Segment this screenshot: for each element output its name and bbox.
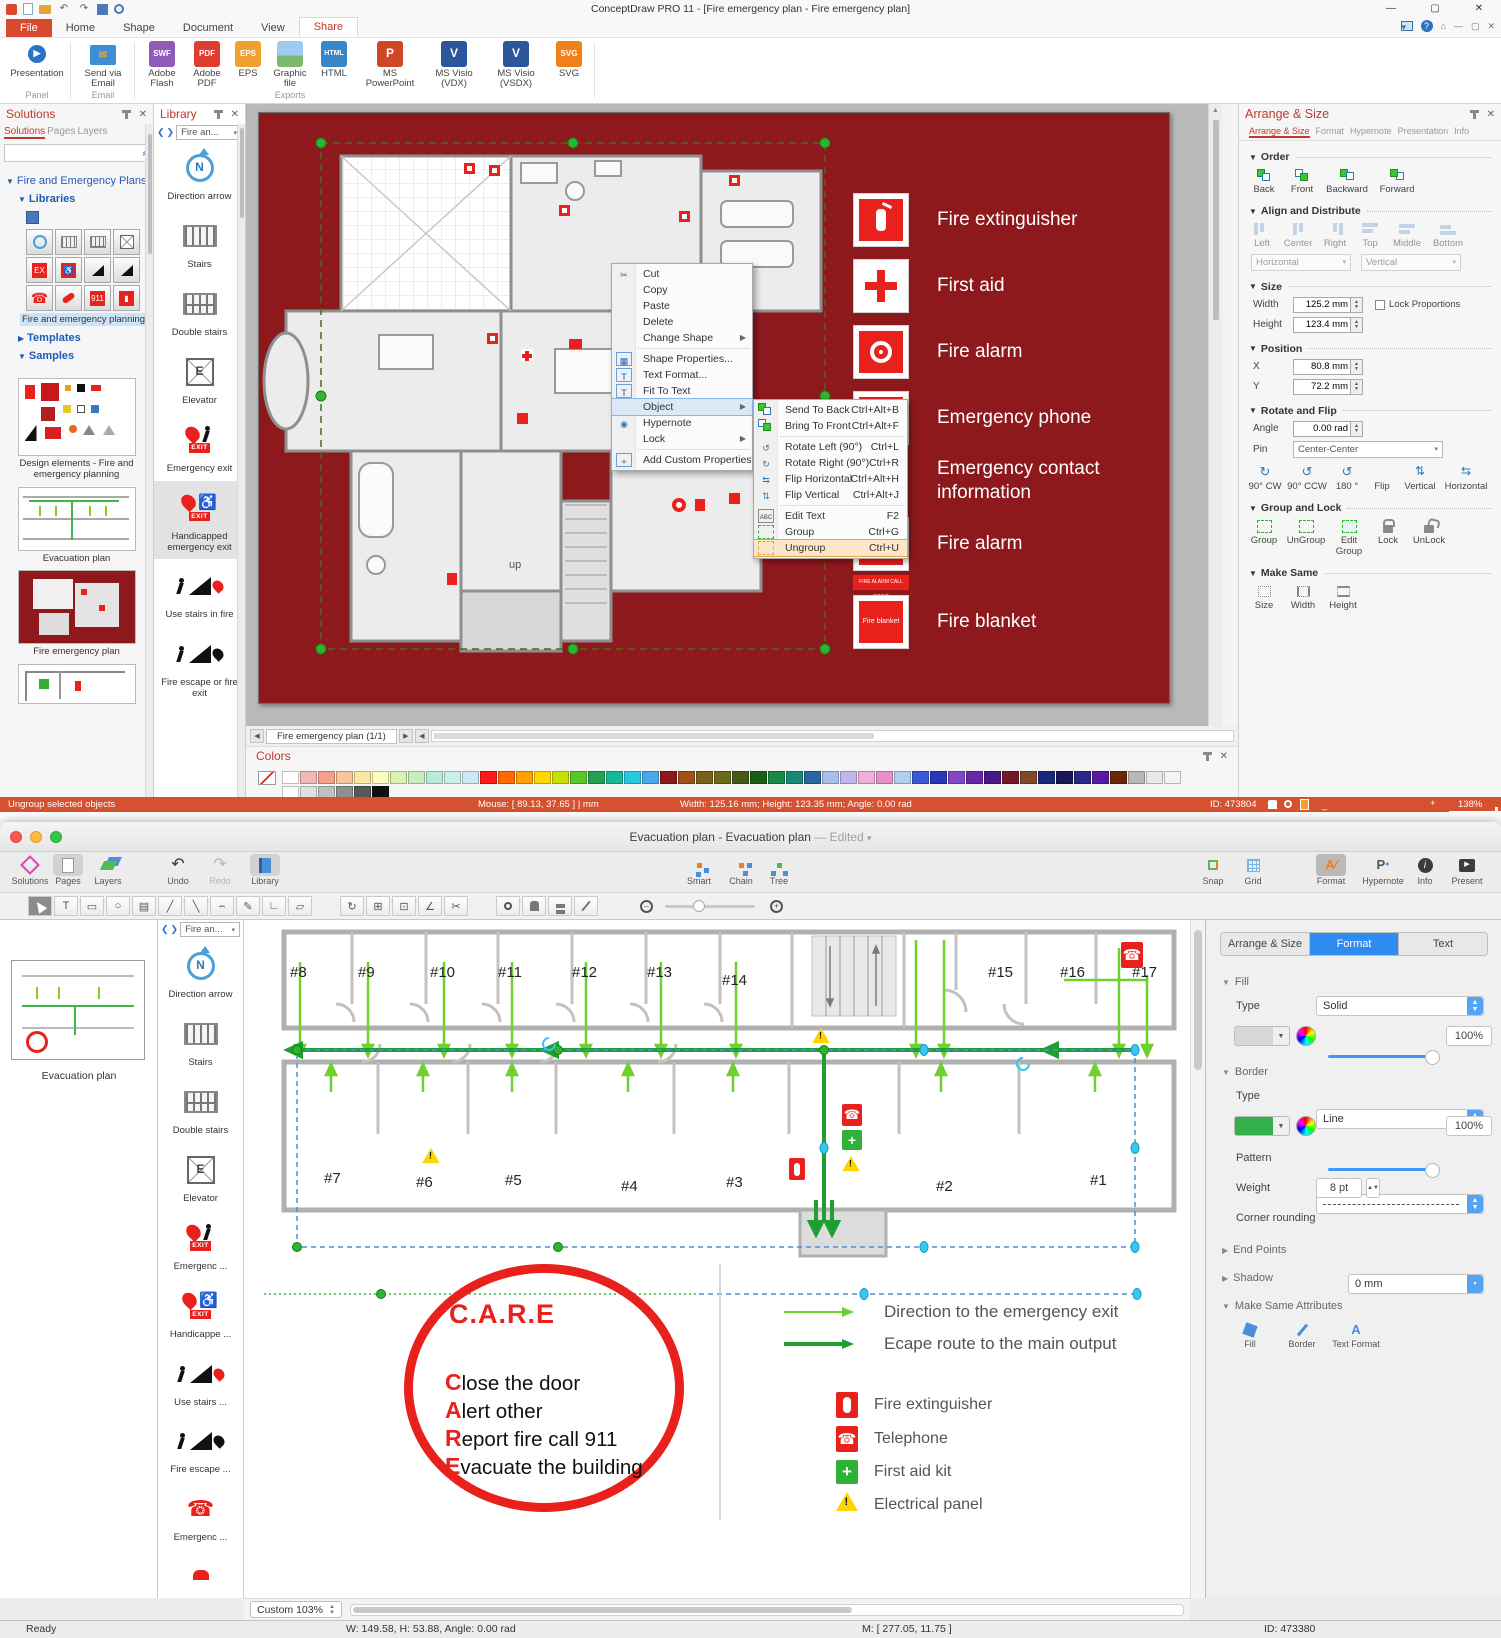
transform-tool[interactable]: ⊞ [366, 896, 390, 916]
library-forward-icon[interactable]: ❯ [167, 127, 175, 138]
library-item-stairs[interactable]: Stairs [154, 209, 245, 277]
menu-item-add-custom-properties[interactable]: +Add Custom Properties [612, 452, 752, 468]
library-item-elevator[interactable]: EElevator [158, 1143, 243, 1211]
close-button[interactable]: ✕ [1457, 0, 1501, 18]
tab-text[interactable]: Text [1399, 933, 1487, 955]
menu-item-text-format[interactable]: TText Format... [612, 367, 752, 383]
menu-item-paste[interactable]: Paste [612, 298, 752, 314]
color-swatch[interactable] [1056, 771, 1073, 784]
legend-fire-alarm-icon[interactable] [853, 325, 909, 379]
color-swatch[interactable] [300, 771, 317, 784]
unlock-button[interactable]: UnLock [1407, 518, 1451, 557]
pin-icon[interactable] [1203, 752, 1212, 761]
fill-color-swatch[interactable]: ▼ [1234, 1026, 1290, 1046]
angle-tool[interactable]: ∟ [262, 896, 286, 916]
color-swatch[interactable] [606, 771, 623, 784]
send-via-email-button[interactable]: ✉ Send via Email [76, 41, 130, 90]
ribbon-group-panel: Panel [10, 90, 64, 100]
rotate-tool[interactable]: ↻ [340, 896, 364, 916]
fill-type-select[interactable]: Solid▲▼ [1316, 996, 1484, 1016]
rotate-90ccw-button[interactable]: ↺90° CCW [1285, 464, 1329, 492]
toolbar-solutions-button[interactable]: Solutions [8, 854, 52, 887]
shape-tool[interactable]: ▱ [288, 896, 312, 916]
border-section[interactable]: ▼Border [1222, 1066, 1268, 1078]
panel-layout-icon[interactable]: ▾ [1401, 21, 1413, 31]
format-tab[interactable]: Format [1316, 126, 1345, 138]
grid-emergency-exit-icon[interactable]: EX [26, 257, 53, 283]
maximize-button[interactable]: ▢ [1413, 0, 1457, 18]
text-tool[interactable]: T [54, 896, 78, 916]
polyline-tool[interactable]: ╲ [184, 896, 208, 916]
legend-fire-extinguisher-icon[interactable] [853, 193, 909, 247]
color-swatch[interactable] [822, 771, 839, 784]
scroll-left-icon[interactable]: ◀ [415, 729, 429, 743]
color-swatch[interactable] [876, 771, 893, 784]
color-wheel-icon[interactable] [1296, 1116, 1316, 1136]
toolbar-library-button[interactable]: Library [244, 854, 286, 887]
sample-design-elements-thumbnail[interactable] [18, 378, 136, 456]
toolbar-undo-button[interactable]: ↶Undo [160, 854, 196, 887]
color-swatch[interactable] [732, 771, 749, 784]
color-swatch[interactable] [714, 771, 731, 784]
submenu-rotate-left[interactable]: ↺Rotate Left (90°)Ctrl+L [754, 439, 907, 455]
color-swatch[interactable] [642, 771, 659, 784]
close-icon[interactable]: ✕ [1487, 109, 1495, 120]
color-swatch[interactable] [750, 771, 767, 784]
next-page-icon[interactable]: ▶ [399, 729, 413, 743]
color-swatch[interactable] [390, 771, 407, 784]
align-middle-button[interactable]: Middle [1387, 221, 1427, 249]
help-icon[interactable]: ? [1421, 20, 1433, 32]
custom-properties-icon: + [616, 453, 632, 467]
toolbar-layers-button[interactable]: Layers [88, 854, 128, 887]
export-svg-button[interactable]: SVG SVG [550, 41, 588, 79]
care-instructions-circle[interactable]: C.A.R.E Close the door Alert other Repor… [404, 1264, 684, 1512]
page-thumbnail[interactable] [11, 960, 145, 1060]
align-bottom-button[interactable]: Bottom [1427, 221, 1469, 249]
color-swatch[interactable] [678, 771, 695, 784]
library-item-handicapped-exit[interactable]: ♿EXITHandicappe ... [158, 1279, 243, 1347]
solutions-search-input[interactable]: » [4, 144, 149, 162]
make-same-height-button[interactable]: Height [1323, 583, 1363, 611]
flip-horizontal-button[interactable]: ⇆Horizontal [1441, 464, 1491, 492]
color-swatch[interactable] [426, 771, 443, 784]
zoom-level-control[interactable]: Custom 103%▲▼ [250, 1601, 342, 1618]
color-swatch[interactable] [534, 771, 551, 784]
info-tab[interactable]: Info [1454, 126, 1469, 138]
border-opacity-slider[interactable] [1328, 1168, 1438, 1171]
menu-item-shape-properties[interactable]: ▦Shape Properties... [612, 351, 752, 367]
angle-input[interactable] [1293, 421, 1351, 437]
color-swatch[interactable] [552, 771, 569, 784]
color-swatch[interactable] [858, 771, 875, 784]
zoom-in-icon[interactable]: + [1430, 798, 1436, 809]
library-caption[interactable]: Fire and emergency planning [20, 313, 152, 326]
solutions-tab-pages[interactable]: Pages [47, 126, 75, 139]
grid-handicapped-exit-icon[interactable]: ♿ [55, 257, 82, 283]
color-swatch[interactable] [624, 771, 641, 784]
order-back-button[interactable]: Back [1245, 167, 1283, 195]
distribute-horizontal-dropdown[interactable]: Horizontal▾ [1251, 254, 1351, 271]
zoom-tool-icon[interactable] [1284, 800, 1292, 808]
height-stepper[interactable]: ▲▼ [1351, 317, 1363, 333]
color-swatch[interactable] [1128, 771, 1145, 784]
color-swatch[interactable] [516, 771, 533, 784]
color-swatch[interactable] [282, 771, 299, 784]
corner-rounding-select[interactable]: 0 mm▾ [1348, 1274, 1484, 1294]
collapse-ribbon-icon[interactable]: ⌂ [1441, 21, 1446, 31]
toolbar-present-button[interactable]: ▶Present [1444, 854, 1490, 887]
mac-vertical-scrollbar[interactable] [1190, 920, 1205, 1598]
presentation-button[interactable]: ▶ Presentation [8, 41, 66, 79]
end-points-section[interactable]: ▶End Points [1222, 1244, 1286, 1256]
menu-item-change-shape[interactable]: Change Shape▶ [612, 330, 752, 346]
color-swatch[interactable] [786, 771, 803, 784]
close-icon[interactable]: ✕ [231, 109, 239, 120]
tree-libraries[interactable]: ▼Libraries [18, 193, 147, 205]
pin-icon[interactable] [122, 110, 131, 119]
same-fill-button[interactable]: Fill [1230, 1322, 1270, 1350]
tab-arrange-size[interactable]: Arrange & Size [1221, 933, 1310, 955]
toolbar-format-button[interactable]: A∕Format [1310, 854, 1352, 887]
color-swatch[interactable] [408, 771, 425, 784]
pin-dropdown[interactable]: Center-Center▾ [1293, 441, 1443, 458]
mini-minimize-icon[interactable]: — [1454, 21, 1463, 31]
fill-opacity-slider[interactable] [1328, 1055, 1438, 1058]
hypernote-tab[interactable]: Hypernote [1350, 126, 1392, 138]
color-wheel-icon[interactable] [1296, 1026, 1316, 1046]
tab-share[interactable]: Share [299, 17, 358, 37]
ungroup-button[interactable]: UnGroup [1283, 518, 1329, 557]
color-swatch[interactable] [588, 771, 605, 784]
toolbar-tree-button[interactable]: Tree [762, 854, 796, 887]
width-stepper[interactable]: ▲▼ [1351, 297, 1363, 313]
border-color-swatch[interactable]: ▼ [1234, 1116, 1290, 1136]
color-swatch[interactable] [1074, 771, 1091, 784]
grid-extinguisher-icon[interactable]: ▮ [113, 285, 140, 311]
align-right-button[interactable]: Right [1317, 221, 1353, 249]
edit-group-button[interactable]: Edit Group [1329, 518, 1369, 557]
order-front-button[interactable]: Front [1283, 167, 1321, 195]
grid-stairs-icon[interactable] [55, 229, 82, 255]
html-file-icon: HTML [321, 41, 347, 67]
bezier-tool[interactable]: ✎ [236, 896, 260, 916]
align-top-button[interactable]: Top [1353, 221, 1387, 249]
canvas-horizontal-scrollbar[interactable] [431, 730, 1234, 742]
order-backward-button[interactable]: Backward [1321, 167, 1373, 195]
x-stepper[interactable]: ▲▼ [1351, 359, 1363, 375]
toolbar-redo-button[interactable]: ↷Redo [202, 854, 238, 887]
pan-tool[interactable] [522, 896, 546, 916]
border-opacity-value[interactable]: 100% [1446, 1116, 1492, 1136]
export-adobe-flash-button[interactable]: SWF Adobe Flash [140, 41, 184, 90]
library-item-direction-arrow[interactable]: N Direction arrow [154, 141, 245, 209]
eyedropper-tool[interactable] [574, 896, 598, 916]
height-input[interactable] [1293, 317, 1351, 333]
color-swatch[interactable] [840, 771, 857, 784]
tab-file[interactable]: File [6, 19, 52, 37]
crop-tool[interactable]: ⊡ [392, 896, 416, 916]
width-input[interactable] [1293, 297, 1351, 313]
same-text-format-button[interactable]: AText Format [1332, 1322, 1380, 1350]
legend-fire-blanket-icon[interactable]: Fire blanket [853, 595, 909, 649]
submenu-bring-to-front[interactable]: Bring To FrontCtrl+Alt+F [754, 418, 907, 434]
sample-evacuation-plan-thumbnail[interactable] [18, 487, 136, 551]
ellipse-tool[interactable]: ○ [106, 896, 130, 916]
menu-item-object[interactable]: Object▶ [612, 399, 752, 415]
toolbar-hypernote-button[interactable]: P●Hypernote [1356, 854, 1410, 887]
toolbar-snap-button[interactable]: Snap [1195, 854, 1231, 887]
grid-elevator-icon[interactable] [113, 229, 140, 255]
mac-titlebar: Evacuation plan - Evacuation plan — Edit… [0, 822, 1501, 852]
menu-item-copy[interactable]: Copy [612, 282, 752, 298]
weight-value[interactable]: 8 pt [1316, 1178, 1362, 1198]
group-button[interactable]: Group [1245, 518, 1283, 557]
pin-icon[interactable] [1470, 110, 1479, 119]
pin-icon[interactable] [214, 110, 223, 119]
angle-label: Angle [1253, 423, 1293, 434]
x-label: X [1253, 361, 1293, 372]
library-dropdown[interactable]: Fire an...▾ [176, 125, 242, 140]
text-format-icon: T [616, 368, 632, 382]
color-swatch[interactable] [948, 771, 965, 784]
library-item-use-stairs-in-fire[interactable]: Use stairs in fire [154, 559, 245, 627]
submenu-rotate-right[interactable]: ↻Rotate Right (90°)Ctrl+R [754, 455, 907, 471]
tree-templates[interactable]: ▶Templates [18, 332, 147, 344]
legend-first-aid-icon[interactable] [853, 259, 909, 313]
color-swatch[interactable] [894, 771, 911, 784]
color-swatch[interactable] [1020, 771, 1037, 784]
tab-home[interactable]: Home [52, 19, 109, 37]
library-item-emergency-exit[interactable]: EXIT Emergency exit [154, 413, 245, 481]
zoom-out-icon[interactable]: – [1322, 804, 1327, 815]
zoom-tool[interactable] [496, 896, 520, 916]
grid-use-stairs-icon[interactable] [84, 257, 111, 283]
grid-double-stairs-icon[interactable] [84, 229, 111, 255]
table-tool[interactable]: ▤ [132, 896, 156, 916]
library-forward-icon[interactable]: ❯ [171, 924, 179, 935]
library-item-direction-arrow[interactable]: NDirection arrow [158, 939, 243, 1007]
grid-fire-escape-icon[interactable] [113, 257, 140, 283]
grid-direction-arrow-icon[interactable] [26, 229, 53, 255]
y-stepper[interactable]: ▲▼ [1351, 379, 1363, 395]
solutions-tab-layers[interactable]: Layers [78, 126, 108, 139]
library-item-handicapped-emergency-exit[interactable]: ♿ EXIT Handicapped emergency exit [154, 481, 245, 560]
sample-fire-emergency-plan-thumbnail[interactable] [18, 570, 136, 644]
grid-receiver-icon[interactable] [55, 285, 82, 311]
pc-drawing-canvas[interactable]: up Fire extinguisher First aid Fire alar… [246, 104, 1222, 726]
solutions-scrollbar[interactable] [145, 124, 153, 797]
close-icon[interactable]: ✕ [1220, 751, 1228, 762]
toolbar-pages-button[interactable]: Pages [50, 854, 86, 887]
page-fit-icon[interactable] [1300, 799, 1309, 810]
color-swatch[interactable] [804, 771, 821, 784]
tab-view[interactable]: View [247, 19, 299, 37]
make-same-width-button[interactable]: Width [1283, 583, 1323, 611]
care-title: C.A.R.E [449, 1299, 555, 1330]
pan-hand-icon[interactable] [1268, 800, 1277, 809]
color-swatch[interactable] [912, 771, 929, 784]
color-swatch[interactable] [570, 771, 587, 784]
same-border-button[interactable]: Border [1280, 1322, 1324, 1350]
menu-item-delete[interactable]: Delete [612, 314, 752, 330]
export-visio-vsdx-button[interactable]: V MS Visio (VSDX) [486, 41, 546, 90]
color-swatch[interactable] [966, 771, 983, 784]
x-input[interactable] [1293, 359, 1351, 375]
library-item-emergency-exit[interactable]: EXITEmergenc ... [158, 1211, 243, 1279]
color-swatch[interactable] [480, 771, 497, 784]
tree-samples[interactable]: ▼Samples [18, 350, 147, 362]
zoom-slider[interactable] [665, 905, 755, 908]
export-adobe-pdf-button[interactable]: PDF Adobe PDF [186, 41, 228, 90]
color-swatch[interactable] [1164, 771, 1181, 784]
cut-tool[interactable]: ✂ [444, 896, 468, 916]
align-left-button[interactable]: Left [1245, 221, 1279, 249]
color-swatch[interactable] [498, 771, 515, 784]
library-item-double-stairs[interactable]: Double stairs [158, 1075, 243, 1143]
library-scrollbar[interactable] [237, 124, 245, 797]
make-same-size-button[interactable]: Size [1245, 583, 1283, 611]
color-swatch[interactable] [444, 771, 461, 784]
library-dropdown[interactable]: Fire an...▾ [180, 922, 240, 937]
mac-drawing-canvas[interactable]: #8 #9 #10 #11 #12 #13 #14 #15 #16 #17 #7… [244, 920, 1190, 1598]
rotate-180-button[interactable]: ↺180 ° [1329, 464, 1365, 492]
fill-section[interactable]: ▼Fill [1222, 976, 1249, 988]
y-input[interactable] [1293, 379, 1351, 395]
align-center-button[interactable]: Center [1279, 221, 1317, 249]
bring-to-front-icon [758, 419, 774, 433]
color-swatch[interactable] [660, 771, 677, 784]
tab-shape[interactable]: Shape [109, 19, 169, 37]
submenu-ungroup[interactable]: UngroupCtrl+U [754, 540, 907, 556]
toolbar-smart-button[interactable]: Smart [680, 854, 718, 887]
save-library-icon[interactable] [26, 211, 147, 227]
library-back-icon[interactable]: ❮ [161, 924, 169, 935]
library-item-emergency-phone[interactable]: ☎Emergenc ... [158, 1482, 243, 1550]
color-swatch[interactable] [1038, 771, 1055, 784]
menu-item-fit-to-text[interactable]: TFit To Text [612, 383, 752, 399]
grid-phone-icon[interactable]: ☎ [26, 285, 53, 311]
menu-item-lock[interactable]: Lock▶ [612, 431, 752, 447]
canvas-vertical-scrollbar[interactable]: ▲ [1208, 104, 1222, 726]
library-preview-grid[interactable]: EX ♿ ☎ 911 ▮ [26, 229, 147, 311]
zoom-out-icon[interactable]: – [640, 900, 653, 913]
rotate-90cw-button[interactable]: ↻90° CW [1245, 464, 1285, 492]
submenu-send-to-back[interactable]: Send To BackCtrl+Alt+B [754, 402, 907, 418]
toolbar-info-button[interactable]: iInfo [1410, 854, 1440, 887]
library-item-use-stairs[interactable]: Use stairs ... [158, 1347, 243, 1415]
export-eps-button[interactable]: EPS EPS [230, 41, 266, 79]
grid-911-icon[interactable]: 911 [84, 285, 111, 311]
weight-stepper[interactable]: ▲▼ [1366, 1178, 1380, 1198]
library-item-stairs[interactable]: Stairs [158, 1007, 243, 1075]
connector-tool[interactable]: ∠ [418, 896, 442, 916]
library-back-icon[interactable]: ❮ [157, 127, 165, 138]
warning-icon [420, 1146, 442, 1165]
toolbar-chain-button[interactable]: Chain [722, 854, 760, 887]
export-html-button[interactable]: HTML HTML [314, 41, 354, 79]
color-swatch[interactable] [696, 771, 713, 784]
lock-button[interactable]: Lock [1369, 518, 1407, 557]
arrange-panel-title: Arrange & Size [1245, 107, 1329, 121]
flip-horizontal-icon: ⇆ [758, 472, 774, 486]
color-swatch[interactable] [1146, 771, 1163, 784]
color-swatch[interactable] [318, 771, 335, 784]
color-swatch[interactable] [1092, 771, 1109, 784]
arrange-tab[interactable]: Arrange & Size [1249, 126, 1310, 138]
line-tool[interactable]: ╱ [158, 896, 182, 916]
tab-document[interactable]: Document [169, 19, 247, 37]
rectangle-tool[interactable]: ▭ [80, 896, 104, 916]
select-tool[interactable] [28, 896, 52, 916]
lock-proportions-checkbox[interactable]: Lock Proportions [1375, 299, 1460, 310]
order-forward-button[interactable]: Forward [1373, 167, 1421, 195]
library-item-double-stairs[interactable]: Double stairs [154, 277, 245, 345]
sample-partial-thumbnail[interactable] [18, 664, 136, 704]
submenu-flip-vertical[interactable]: ⇅Flip VerticalCtrl+Alt+J [754, 487, 907, 503]
color-swatch[interactable] [372, 771, 389, 784]
angle-stepper[interactable]: ▲▼ [1351, 421, 1363, 437]
color-swatch[interactable] [1110, 771, 1127, 784]
mini-restore-icon[interactable]: ▢ [1471, 21, 1480, 32]
shadow-section[interactable]: ▶Shadow [1222, 1272, 1273, 1284]
fire-emergency-plan-page[interactable]: up Fire extinguisher First aid Fire alar… [258, 112, 1170, 704]
zoom-in-icon[interactable]: + [770, 900, 783, 913]
toolbar-grid-button[interactable]: Grid [1236, 854, 1270, 887]
submenu-flip-horizontal[interactable]: ⇆Flip HorizontalCtrl+Alt+H [754, 471, 907, 487]
export-powerpoint-button[interactable]: P MS PowerPoint [358, 41, 422, 90]
color-swatch[interactable] [354, 771, 371, 784]
menu-item-hypernote[interactable]: ◉Hypernote [612, 415, 752, 431]
color-swatch[interactable] [462, 771, 479, 784]
flip-vertical-button[interactable]: ⇅Vertical [1399, 464, 1441, 492]
tree-fire-emergency-plans[interactable]: ▼Fire and Emergency Plans [6, 175, 147, 187]
color-swatch[interactable] [336, 771, 353, 784]
distribute-vertical-dropdown[interactable]: Vertical▾ [1361, 254, 1461, 271]
mac-horizontal-scrollbar[interactable] [350, 1604, 1184, 1616]
submenu-edit-text[interactable]: ABCEdit TextF2 [754, 508, 907, 524]
library-item-fire-escape[interactable]: Fire escape ... [158, 1414, 243, 1482]
minimize-button[interactable]: — [1369, 0, 1413, 18]
library-item-fire-escape[interactable]: Fire escape or fire exit [154, 627, 245, 706]
library-item-elevator[interactable]: E Elevator [154, 345, 245, 413]
solutions-tab-solutions[interactable]: Solutions [4, 126, 45, 139]
menu-item-cut[interactable]: ✂Cut [612, 266, 752, 282]
arc-tool[interactable]: ⌢ [210, 896, 234, 916]
shape-properties-icon: ▦ [616, 352, 632, 366]
send-to-back-icon [758, 403, 774, 417]
mini-close-icon[interactable]: ✕ [1487, 21, 1495, 32]
page-tab[interactable]: Fire emergency plan (1/1) [266, 729, 397, 744]
color-swatch[interactable] [984, 771, 1001, 784]
export-graphic-file-button[interactable]: Graphic file [268, 41, 312, 90]
color-swatch[interactable] [1002, 771, 1019, 784]
fill-opacity-value[interactable]: 100% [1446, 1026, 1492, 1046]
tab-format[interactable]: Format [1310, 933, 1399, 955]
stamp-tool[interactable] [548, 896, 572, 916]
submenu-group[interactable]: GroupCtrl+G [754, 524, 907, 540]
color-swatch[interactable] [930, 771, 947, 784]
zoom-slider[interactable] [1449, 811, 1501, 813]
prev-page-icon[interactable]: ◀ [250, 729, 264, 743]
close-icon[interactable]: ✕ [139, 109, 147, 120]
no-color-swatch[interactable] [258, 771, 276, 785]
presentation-tab[interactable]: Presentation [1398, 126, 1449, 138]
make-same-attributes-section[interactable]: ▼Make Same Attributes [1222, 1300, 1343, 1312]
export-visio-vdx-button[interactable]: V MS Visio (VDX) [426, 41, 482, 90]
color-swatch[interactable] [768, 771, 785, 784]
color-swatches [282, 771, 1181, 784]
